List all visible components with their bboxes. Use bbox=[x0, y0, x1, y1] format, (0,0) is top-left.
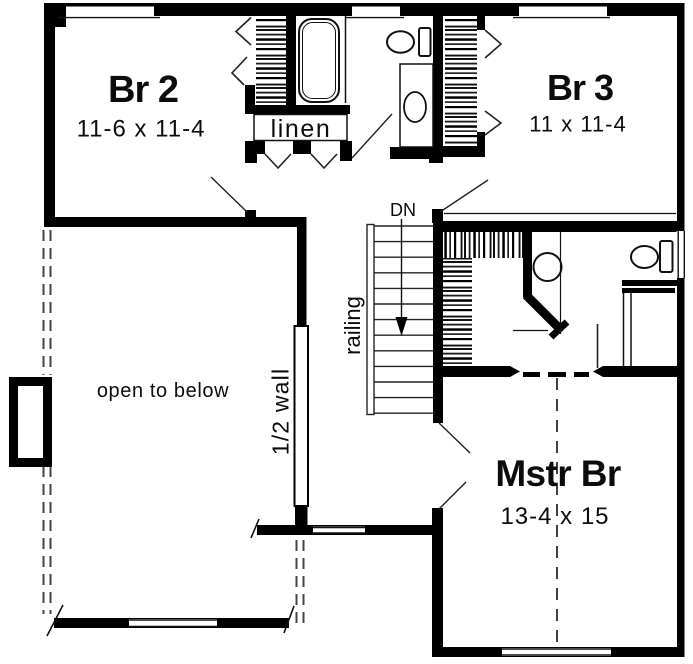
svg-text:railing: railing bbox=[340, 296, 365, 355]
svg-text:DN: DN bbox=[390, 200, 416, 220]
svg-text:Br 3: Br 3 bbox=[547, 67, 613, 108]
svg-text:11-6 x 11-4: 11-6 x 11-4 bbox=[77, 116, 206, 143]
svg-text:linen: linen bbox=[271, 115, 332, 143]
svg-text:Mstr Br: Mstr Br bbox=[495, 453, 621, 494]
svg-text:13-4 x 15: 13-4 x 15 bbox=[500, 503, 609, 530]
svg-text:Br 2: Br 2 bbox=[108, 69, 178, 111]
svg-text:open to below: open to below bbox=[97, 380, 229, 402]
svg-text:1/2 wall: 1/2 wall bbox=[268, 368, 294, 456]
svg-text:11 x 11-4: 11 x 11-4 bbox=[529, 112, 626, 137]
